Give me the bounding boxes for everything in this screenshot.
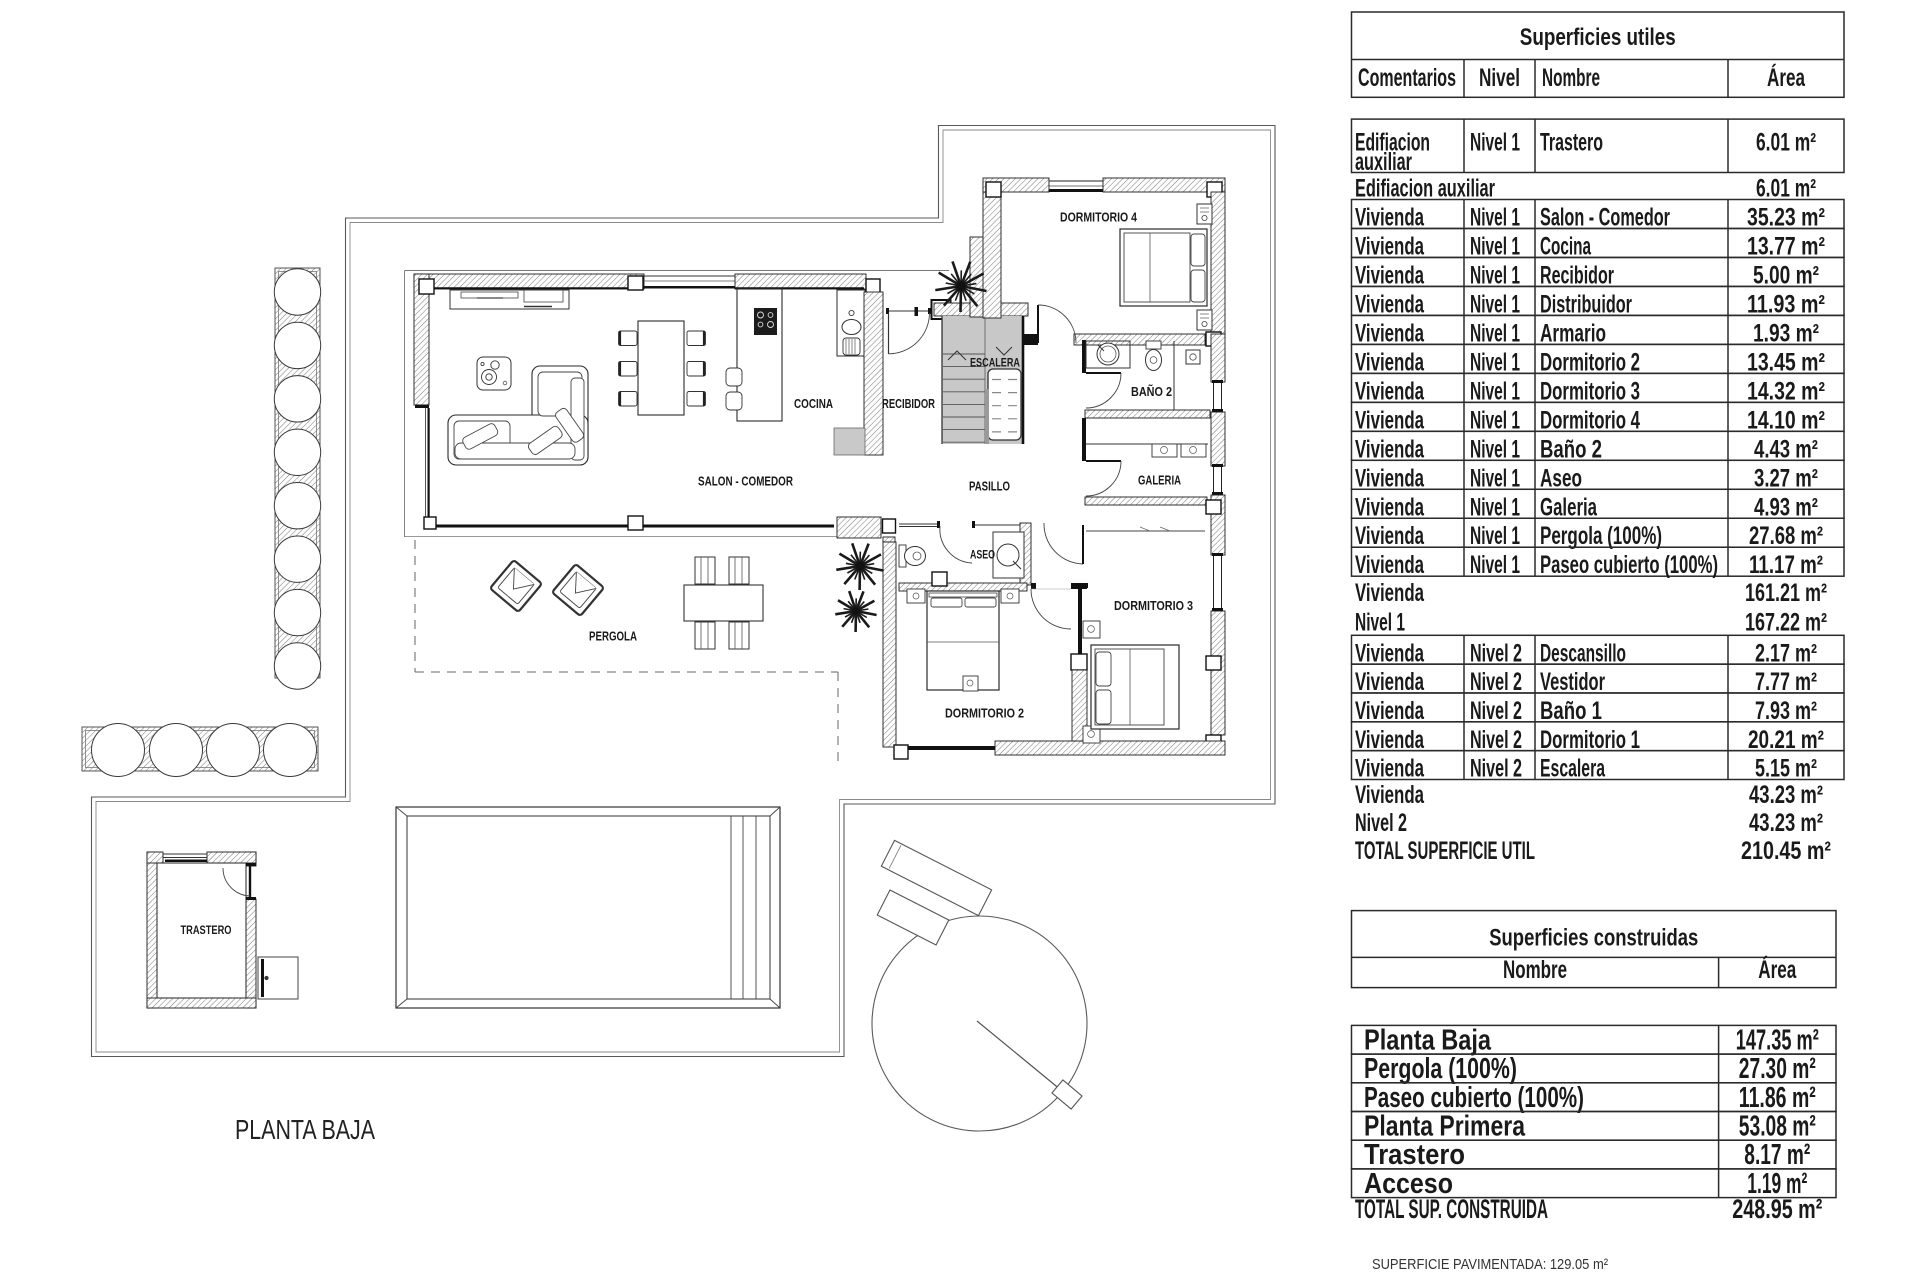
svg-text:Nivel 1: Nivel 1 — [1470, 522, 1520, 550]
svg-text:Vivienda: Vivienda — [1355, 348, 1425, 376]
svg-text:Pergola (100%): Pergola (100%) — [1364, 1053, 1517, 1085]
svg-text:11.93 m²: 11.93 m² — [1747, 290, 1825, 318]
svg-text:Vivienda: Vivienda — [1355, 755, 1425, 783]
svg-text:TOTAL SUP. CONSTRUIDA: TOTAL SUP. CONSTRUIDA — [1355, 1194, 1548, 1224]
svg-text:Nombre: Nombre — [1503, 956, 1567, 984]
svg-text:Vivienda: Vivienda — [1355, 551, 1425, 579]
svg-text:248.95 m²: 248.95 m² — [1732, 1194, 1822, 1224]
svg-text:Vivienda: Vivienda — [1355, 726, 1425, 754]
svg-text:167.22 m²: 167.22 m² — [1745, 609, 1827, 637]
svg-text:TRASTERO: TRASTERO — [181, 923, 232, 937]
svg-text:Armario: Armario — [1540, 319, 1606, 347]
svg-text:Nivel 2: Nivel 2 — [1470, 697, 1522, 725]
svg-text:Nivel 1: Nivel 1 — [1470, 551, 1520, 579]
svg-text:Vivienda: Vivienda — [1355, 319, 1425, 347]
svg-text:Distribuidor: Distribuidor — [1540, 290, 1632, 318]
svg-text:Nivel 2: Nivel 2 — [1470, 639, 1522, 667]
svg-text:20.21 m²: 20.21 m² — [1748, 726, 1824, 754]
svg-text:Nivel 1: Nivel 1 — [1470, 232, 1520, 260]
svg-text:COCINA: COCINA — [794, 396, 833, 411]
svg-text:Nivel 2: Nivel 2 — [1470, 755, 1522, 783]
svg-text:11.17 m²: 11.17 m² — [1749, 551, 1823, 579]
svg-text:5.15 m²: 5.15 m² — [1755, 755, 1817, 783]
svg-text:Baño 2: Baño 2 — [1540, 435, 1602, 463]
svg-text:Vivienda: Vivienda — [1355, 781, 1425, 809]
svg-text:Trastero: Trastero — [1364, 1139, 1465, 1171]
svg-text:Paseo cubierto (100%): Paseo cubierto (100%) — [1364, 1082, 1584, 1114]
svg-text:PERGOLA: PERGOLA — [589, 629, 637, 644]
svg-text:Baño 1: Baño 1 — [1540, 697, 1602, 725]
svg-text:7.93 m²: 7.93 m² — [1755, 697, 1817, 725]
svg-text:Pergola (100%): Pergola (100%) — [1540, 522, 1662, 550]
svg-text:Vivienda: Vivienda — [1355, 406, 1425, 434]
svg-text:8.17 m²: 8.17 m² — [1744, 1139, 1810, 1171]
svg-text:Vivienda: Vivienda — [1355, 204, 1425, 232]
svg-text:Descansillo: Descansillo — [1540, 639, 1626, 667]
svg-text:RECIBIDOR: RECIBIDOR — [882, 396, 935, 411]
svg-text:Vivienda: Vivienda — [1355, 261, 1425, 289]
svg-text:Comentarios: Comentarios — [1358, 64, 1456, 92]
svg-text:13.77 m²: 13.77 m² — [1747, 232, 1825, 260]
svg-text:Vivienda: Vivienda — [1355, 377, 1425, 405]
svg-text:3.27 m²: 3.27 m² — [1754, 464, 1818, 492]
svg-text:Vivienda: Vivienda — [1355, 290, 1425, 318]
svg-text:GALERIA: GALERIA — [1138, 473, 1181, 488]
svg-text:Superficies construidas: Superficies construidas — [1489, 925, 1698, 952]
svg-text:SALON - COMEDOR: SALON - COMEDOR — [698, 474, 793, 489]
svg-text:4.43 m²: 4.43 m² — [1754, 435, 1818, 463]
svg-text:Vestidor: Vestidor — [1540, 668, 1605, 696]
svg-text:Trastero: Trastero — [1540, 129, 1603, 157]
svg-text:27.30 m²: 27.30 m² — [1739, 1053, 1816, 1085]
svg-text:43.23 m²: 43.23 m² — [1749, 781, 1823, 809]
svg-text:Nivel 1: Nivel 1 — [1470, 493, 1520, 521]
svg-text:Nivel 1: Nivel 1 — [1470, 290, 1520, 318]
svg-text:Planta Baja: Planta Baja — [1364, 1024, 1492, 1056]
svg-text:Dormitorio 4: Dormitorio 4 — [1540, 406, 1640, 434]
svg-text:ESCALERA: ESCALERA — [970, 356, 1020, 370]
svg-text:Nivel 2: Nivel 2 — [1355, 809, 1407, 837]
svg-text:147.35 m²: 147.35 m² — [1736, 1024, 1819, 1056]
svg-text:SUPERFICIE PAVIMENTADA: 129.05: SUPERFICIE PAVIMENTADA: 129.05 m² — [1372, 1256, 1608, 1273]
svg-text:6.01 m²: 6.01 m² — [1756, 129, 1816, 157]
svg-text:DORMITORIO 3: DORMITORIO 3 — [1114, 598, 1193, 613]
svg-text:Vivienda: Vivienda — [1355, 697, 1425, 725]
svg-text:53.08 m²: 53.08 m² — [1739, 1111, 1816, 1143]
svg-text:auxiliar: auxiliar — [1355, 148, 1412, 176]
svg-text:Vivienda: Vivienda — [1355, 668, 1425, 696]
svg-text:BAÑO 2: BAÑO 2 — [1131, 384, 1172, 399]
svg-text:Nivel 1: Nivel 1 — [1470, 435, 1520, 463]
svg-text:6.01 m²: 6.01 m² — [1756, 175, 1816, 203]
svg-text:4.93 m²: 4.93 m² — [1754, 493, 1818, 521]
svg-text:Vivienda: Vivienda — [1355, 464, 1425, 492]
svg-text:Dormitorio 3: Dormitorio 3 — [1540, 377, 1640, 405]
svg-text:Nivel 1: Nivel 1 — [1470, 464, 1520, 492]
svg-text:Nivel 1: Nivel 1 — [1470, 319, 1520, 347]
svg-text:Planta Primera: Planta Primera — [1364, 1111, 1526, 1143]
svg-text:Recibidor: Recibidor — [1540, 261, 1614, 289]
svg-text:ASEO: ASEO — [970, 548, 995, 562]
svg-text:13.45 m²: 13.45 m² — [1747, 348, 1825, 376]
svg-text:43.23 m²: 43.23 m² — [1749, 809, 1823, 837]
svg-text:Nivel: Nivel — [1479, 64, 1520, 92]
svg-text:Salon - Comedor: Salon - Comedor — [1540, 204, 1670, 232]
svg-text:7.77 m²: 7.77 m² — [1755, 668, 1817, 696]
svg-text:Aseo: Aseo — [1540, 464, 1582, 492]
svg-text:Superficies utiles: Superficies utiles — [1520, 24, 1676, 51]
svg-text:PASILLO: PASILLO — [969, 479, 1010, 494]
svg-text:Nivel 1: Nivel 1 — [1355, 609, 1405, 637]
svg-text:Cocina: Cocina — [1540, 232, 1592, 260]
svg-text:Vivienda: Vivienda — [1355, 522, 1425, 550]
svg-text:161.21 m²: 161.21 m² — [1745, 579, 1827, 607]
svg-text:DORMITORIO 4: DORMITORIO 4 — [1060, 210, 1138, 225]
svg-text:35.23 m²: 35.23 m² — [1747, 204, 1825, 232]
svg-text:14.32 m²: 14.32 m² — [1747, 377, 1825, 405]
svg-text:Dormitorio 1: Dormitorio 1 — [1540, 726, 1640, 754]
svg-text:Vivienda: Vivienda — [1355, 639, 1425, 667]
svg-text:Escalera: Escalera — [1540, 755, 1606, 783]
svg-text:Dormitorio 2: Dormitorio 2 — [1540, 348, 1640, 376]
svg-text:Nivel 1: Nivel 1 — [1470, 377, 1520, 405]
svg-text:Nivel 2: Nivel 2 — [1470, 668, 1522, 696]
svg-text:11.86 m²: 11.86 m² — [1739, 1082, 1816, 1114]
svg-text:Nivel 2: Nivel 2 — [1470, 726, 1522, 754]
svg-text:Vivienda: Vivienda — [1355, 232, 1425, 260]
svg-text:14.10 m²: 14.10 m² — [1747, 406, 1825, 434]
svg-text:TOTAL SUPERFICIE UTIL: TOTAL SUPERFICIE UTIL — [1355, 837, 1535, 865]
svg-text:Vivienda: Vivienda — [1355, 435, 1425, 463]
svg-text:Área: Área — [1767, 63, 1806, 92]
svg-text:Galeria: Galeria — [1540, 493, 1598, 521]
svg-text:2.17 m²: 2.17 m² — [1755, 639, 1817, 667]
svg-text:Vivienda: Vivienda — [1355, 493, 1425, 521]
svg-text:Nivel 1: Nivel 1 — [1470, 204, 1520, 232]
svg-text:Área: Área — [1758, 955, 1797, 984]
svg-text:Edifiacion auxiliar: Edifiacion auxiliar — [1355, 175, 1495, 203]
svg-text:Nivel 1: Nivel 1 — [1470, 129, 1520, 157]
svg-text:Nombre: Nombre — [1542, 64, 1600, 92]
svg-text:210.45 m²: 210.45 m² — [1741, 837, 1831, 865]
svg-text:5.00 m²: 5.00 m² — [1753, 261, 1819, 289]
svg-text:PLANTA BAJA: PLANTA BAJA — [235, 1114, 375, 1145]
svg-text:1.93 m²: 1.93 m² — [1753, 319, 1819, 347]
svg-text:Nivel 1: Nivel 1 — [1470, 348, 1520, 376]
svg-text:Paseo cubierto (100%): Paseo cubierto (100%) — [1540, 551, 1718, 579]
svg-text:Nivel 1: Nivel 1 — [1470, 406, 1520, 434]
svg-text:Nivel 1: Nivel 1 — [1470, 261, 1520, 289]
svg-text:Vivienda: Vivienda — [1355, 579, 1425, 607]
svg-text:27.68 m²: 27.68 m² — [1749, 522, 1823, 550]
svg-text:DORMITORIO 2: DORMITORIO 2 — [945, 706, 1024, 721]
